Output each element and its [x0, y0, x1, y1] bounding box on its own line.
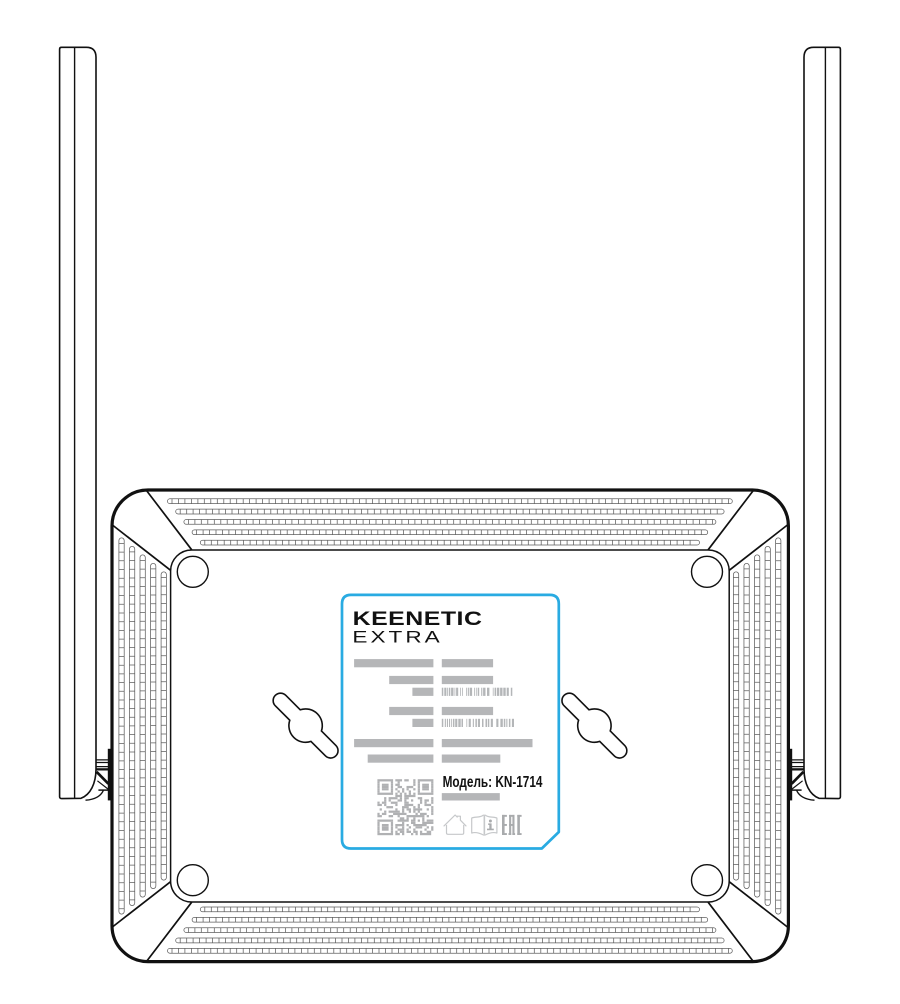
svg-text:KEENETIC: KEENETIC: [353, 607, 483, 629]
svg-text:EXTRA: EXTRA: [352, 628, 442, 646]
svg-text:Модель: KN-1714: Модель: KN-1714: [443, 773, 543, 790]
